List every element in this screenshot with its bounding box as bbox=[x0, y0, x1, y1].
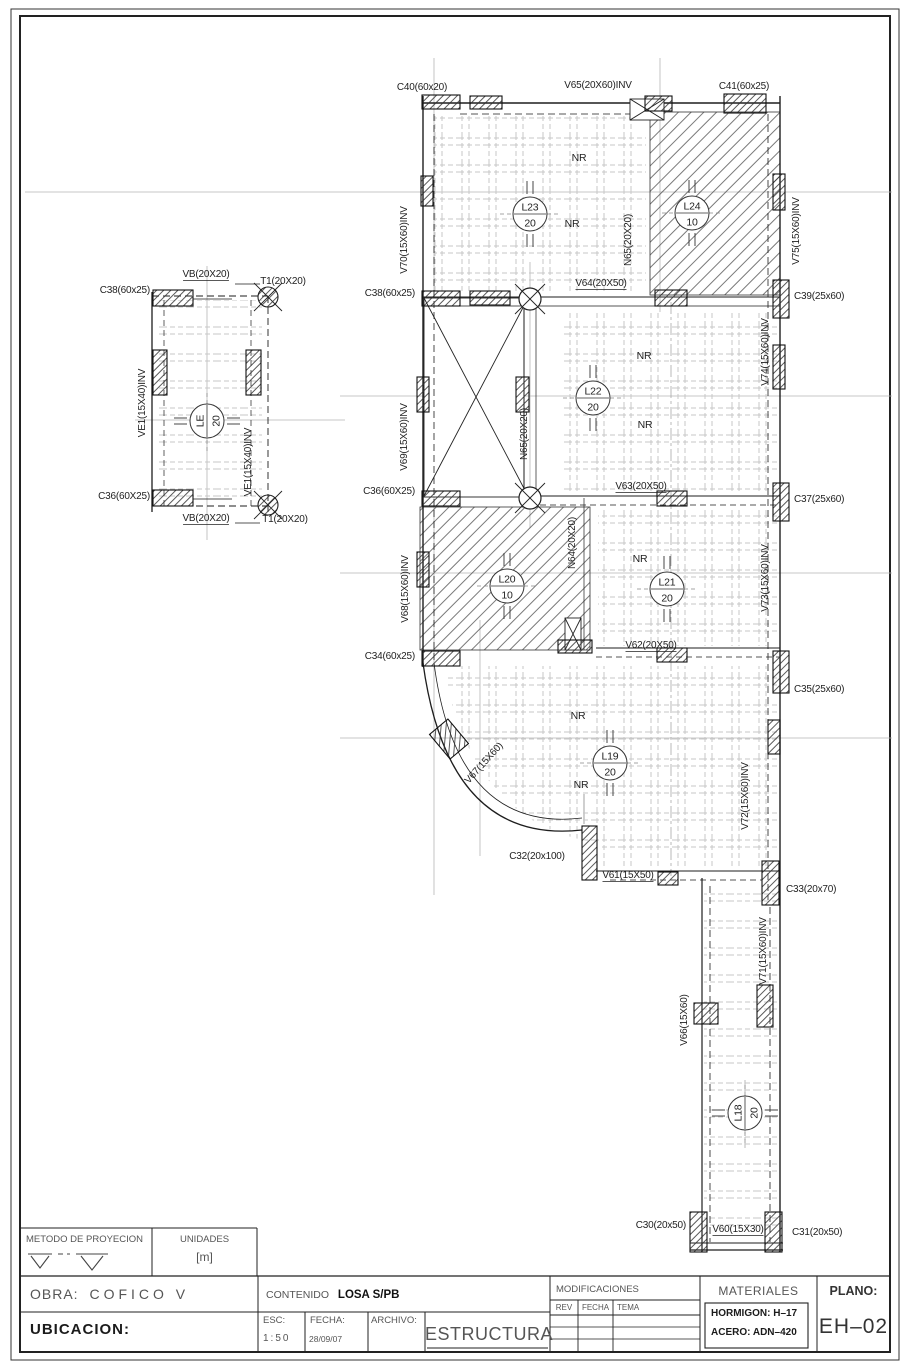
svg-text:10: 10 bbox=[501, 590, 513, 602]
label-c33-20x70: C33(20x70) bbox=[786, 884, 836, 895]
svg-text:20: 20 bbox=[661, 593, 673, 605]
label-c39-25x60: C39(25x60) bbox=[794, 291, 844, 302]
sheet-number-label: PLANO: bbox=[817, 1284, 890, 1298]
label-nr: NR bbox=[574, 779, 589, 791]
label-v71-15x60-inv: V71(15X60)INV bbox=[758, 917, 769, 985]
column-c31 bbox=[765, 1212, 782, 1252]
svg-text:10: 10 bbox=[686, 217, 698, 229]
sheet-number-value: EH–02 bbox=[817, 1315, 890, 1339]
label-nr: NR bbox=[572, 152, 587, 164]
label-v70-15x60-inv: V70(15X60)INV bbox=[399, 206, 410, 274]
date-value: 28/09/07 bbox=[309, 1334, 342, 1344]
rev-column-label: REV bbox=[550, 1303, 578, 1312]
column-c39 bbox=[773, 280, 789, 318]
pilaster bbox=[417, 377, 429, 412]
units-label: UNIDADES bbox=[152, 1234, 257, 1245]
structural-plan-canvas: C38(60x25)VB(20X20)T1(20X20)VE1(15X40)IN… bbox=[0, 0, 910, 1369]
ubicacion-label: UBICACION: bbox=[30, 1321, 130, 1338]
pilaster bbox=[558, 640, 592, 653]
units-value: [m] bbox=[152, 1250, 257, 1264]
svg-text:20: 20 bbox=[587, 402, 599, 414]
svg-text:20: 20 bbox=[211, 415, 223, 427]
label-c30-20x50: C30(20x50) bbox=[636, 1220, 686, 1231]
pilaster bbox=[694, 1003, 718, 1024]
svg-text:20: 20 bbox=[524, 218, 536, 230]
svg-text:LE: LE bbox=[195, 415, 207, 428]
obra-label: OBRA: bbox=[30, 1286, 79, 1302]
label-c32-20x100: C32(20x100) bbox=[509, 851, 565, 862]
svg-text:L24: L24 bbox=[684, 201, 701, 213]
stair-void-x bbox=[424, 298, 528, 497]
label-v74-15x60-inv: V74(15X60)INV bbox=[760, 318, 771, 386]
column-c41 bbox=[724, 94, 766, 113]
pilaster bbox=[421, 176, 433, 206]
fecha-column-label: FECHA bbox=[578, 1303, 613, 1312]
label-nr: NR bbox=[633, 553, 648, 565]
obra-row: OBRA: COFICO V bbox=[30, 1286, 189, 1302]
label-nr: NR bbox=[571, 710, 586, 722]
label-v62-20x50: V62(20X50) bbox=[625, 640, 676, 651]
projection-symbol-icon bbox=[28, 1254, 108, 1270]
pilaster bbox=[773, 345, 785, 389]
svg-text:20: 20 bbox=[749, 1107, 761, 1119]
solid-panel-l24 bbox=[650, 112, 780, 295]
pilaster bbox=[470, 291, 510, 305]
label-nr: NR bbox=[637, 350, 652, 362]
modifications-label: MODIFICACIONES bbox=[556, 1284, 639, 1295]
pilaster bbox=[470, 96, 502, 109]
file-value: ESTRUCTURA bbox=[425, 1324, 548, 1345]
pilaster bbox=[773, 174, 785, 210]
label-n65-20x20: N65(20X20) bbox=[623, 214, 634, 266]
label-nr: NR bbox=[565, 218, 580, 230]
label-c38-60x25: C38(60x25) bbox=[365, 288, 415, 299]
contenido-label: CONTENIDO bbox=[266, 1289, 329, 1301]
label-v60-15x30: V60(15X30) bbox=[712, 1224, 763, 1235]
label-c36-60x25: C36(60X25) bbox=[363, 486, 415, 497]
pilaster bbox=[246, 350, 261, 395]
label-v65-20x60-inv: V65(20X60)INV bbox=[564, 80, 632, 91]
label-ve1-15x40-inv: VE1(15X40)INV bbox=[137, 368, 148, 437]
steel-spec: ACERO: ADN–420 bbox=[711, 1327, 797, 1338]
tema-column-label: TEMA bbox=[617, 1303, 639, 1312]
svg-text:L18: L18 bbox=[733, 1104, 745, 1121]
label-v73-15x60-inv: V73(15X60)INV bbox=[760, 544, 771, 612]
pilaster bbox=[658, 872, 678, 885]
label-n64-20x20: N64(20X20) bbox=[567, 517, 578, 569]
svg-text:L19: L19 bbox=[602, 751, 619, 763]
label-vb-20x20: VB(20X20) bbox=[182, 513, 229, 524]
column-c30 bbox=[690, 1212, 707, 1252]
label-v72-15x60-inv: V72(15X60)INV bbox=[740, 762, 751, 830]
label-c31-20x50: C31(20x50) bbox=[792, 1227, 842, 1238]
scale-value: 1:50 bbox=[263, 1333, 290, 1344]
label-n65-20x20: N65(20X20) bbox=[519, 408, 530, 460]
label-c36-60x25: C36(60X25) bbox=[98, 491, 150, 502]
label-v63-20x50: V63(20X50) bbox=[615, 481, 666, 492]
tie-column bbox=[515, 483, 545, 513]
label-v75-15x60-inv: V75(15X60)INV bbox=[791, 197, 802, 265]
date-label: FECHA: bbox=[310, 1315, 345, 1326]
svg-text:L21: L21 bbox=[659, 577, 676, 589]
scale-label: ESC: bbox=[263, 1315, 285, 1326]
label-v69-15x60-inv: V69(15X60)INV bbox=[399, 403, 410, 471]
tie-column-t1 bbox=[254, 283, 282, 311]
pilaster bbox=[768, 720, 780, 754]
contenido-row: CONTENIDO LOSA S/PB bbox=[266, 1289, 399, 1301]
drawing-sheet: C38(60x25)VB(20X20)T1(20X20)VE1(15X40)IN… bbox=[0, 0, 910, 1369]
projection-method-label: METODO DE PROYECION bbox=[26, 1234, 143, 1245]
label-c41-60x25: C41(60x25) bbox=[719, 81, 769, 92]
column-c40 bbox=[422, 95, 460, 109]
contenido-value: LOSA S/PB bbox=[338, 1289, 400, 1301]
label-c38-60x25: C38(60x25) bbox=[100, 285, 150, 296]
column-c37 bbox=[773, 483, 789, 521]
tie-column bbox=[515, 284, 545, 314]
label-v66-15x60: V66(15X60) bbox=[679, 994, 690, 1045]
label-c34-60x25: C34(60x25) bbox=[365, 651, 415, 662]
column-c36 bbox=[422, 491, 460, 506]
column-c33 bbox=[762, 861, 779, 905]
label-nr: NR bbox=[638, 419, 653, 431]
label-t1-20x20: T1(20X20) bbox=[260, 276, 305, 287]
label-v61-15x50: V61(15X50) bbox=[602, 870, 653, 881]
pilaster bbox=[516, 377, 529, 412]
svg-text:20: 20 bbox=[604, 767, 616, 779]
column-c34 bbox=[422, 651, 460, 666]
label-c37-25x60: C37(25x60) bbox=[794, 494, 844, 505]
label-ve1-15x40-inv: VE1(15X40)INV bbox=[243, 427, 254, 496]
column-c35 bbox=[773, 651, 789, 693]
label-c40-60x20: C40(60x20) bbox=[397, 82, 447, 93]
obra-value: COFICO V bbox=[89, 1286, 189, 1302]
pilaster bbox=[757, 985, 773, 1027]
label-c35-25x60: C35(25x60) bbox=[794, 684, 844, 695]
label-t1-20x20: T1(20X20) bbox=[262, 514, 307, 525]
svg-text:L23: L23 bbox=[522, 202, 539, 214]
column-c38 bbox=[422, 291, 460, 306]
pilaster bbox=[645, 96, 672, 111]
concrete-spec: HORMIGON: H–17 bbox=[711, 1308, 797, 1319]
column-c38-annex bbox=[153, 290, 193, 306]
pilaster bbox=[153, 350, 167, 395]
svg-text:L20: L20 bbox=[499, 574, 516, 586]
pilaster bbox=[657, 491, 687, 506]
materials-label: MATERIALES bbox=[700, 1284, 817, 1298]
column-c36-annex bbox=[153, 490, 193, 506]
svg-text:L22: L22 bbox=[585, 386, 602, 398]
column-c32 bbox=[582, 826, 597, 880]
label-v64-20x50: V64(20X50) bbox=[575, 278, 626, 289]
pilaster bbox=[655, 290, 687, 306]
pilaster bbox=[417, 552, 429, 587]
label-vb-20x20: VB(20X20) bbox=[182, 269, 229, 280]
file-label: ARCHIVO: bbox=[371, 1315, 417, 1326]
label-v68-15x60-inv: V68(15X60)INV bbox=[400, 555, 411, 623]
